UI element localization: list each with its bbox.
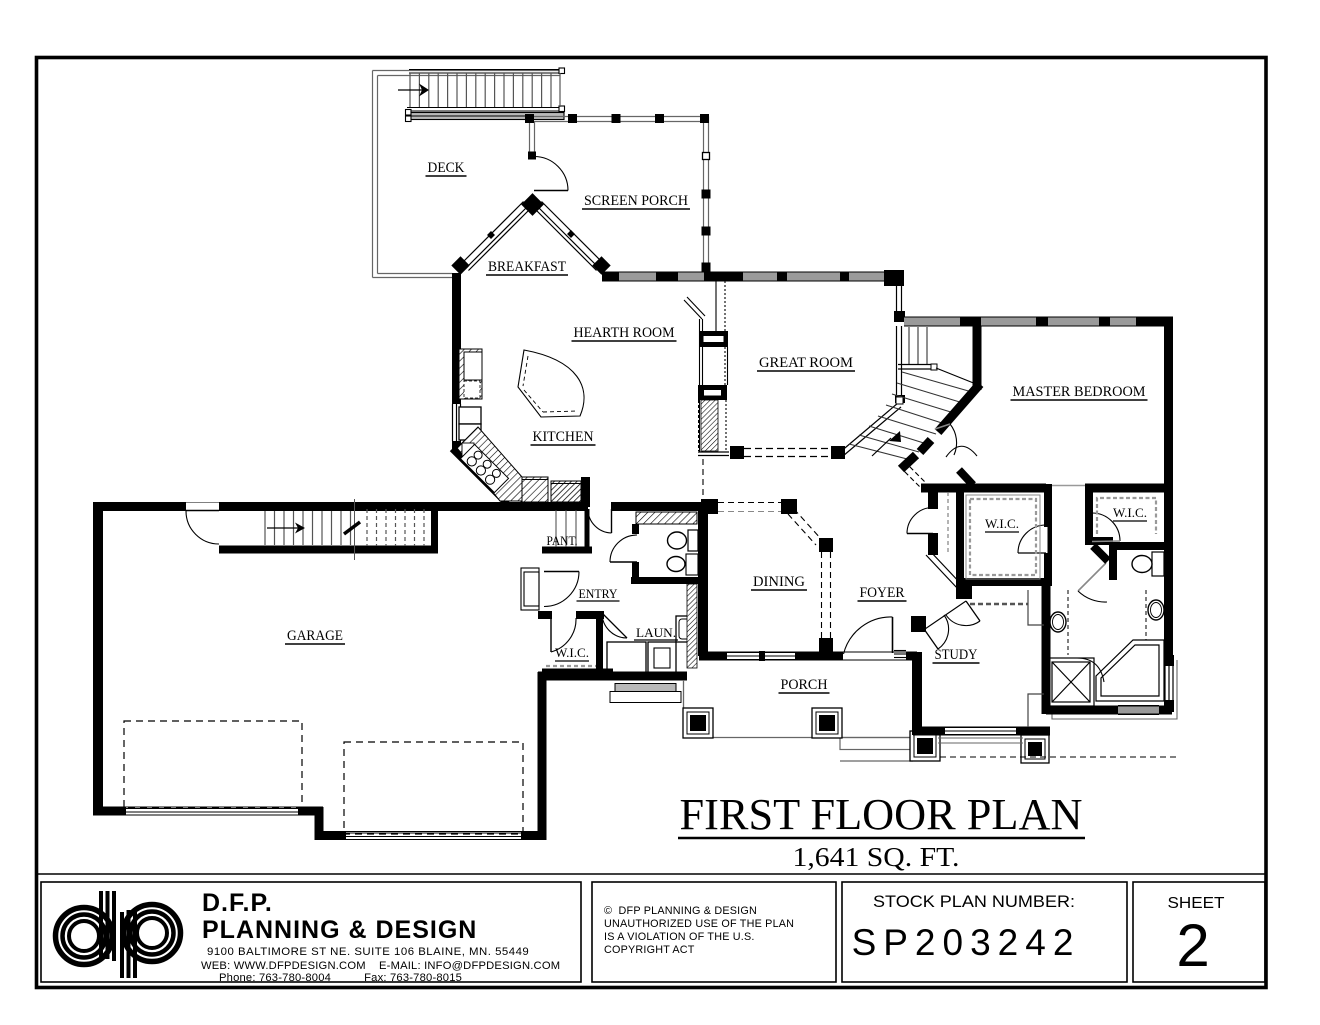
svg-text:ENTRY: ENTRY [579,586,619,601]
svg-text:FOYER: FOYER [860,585,905,601]
svg-text:STUDY: STUDY [935,647,978,663]
svg-text:FIRST FLOOR PLAN: FIRST FLOOR PLAN [680,790,1083,839]
svg-text:MASTER BEDROOM: MASTER BEDROOM [1013,384,1146,400]
svg-text:STOCK PLAN NUMBER:: STOCK PLAN NUMBER: [873,892,1075,911]
svg-text:UNAUTHORIZED USE OF THE PLAN: UNAUTHORIZED USE OF THE PLAN [604,918,794,930]
svg-text:SP203242: SP203242 [852,922,1081,963]
svg-text:W.I.C.: W.I.C. [985,516,1019,531]
svg-text:GREAT ROOM: GREAT ROOM [759,355,853,371]
svg-text:IS A VIOLATION OF THE U.S.: IS A VIOLATION OF THE U.S. [604,931,755,943]
svg-text:BREAKFAST: BREAKFAST [488,259,566,275]
svg-text:COPYRIGHT ACT: COPYRIGHT ACT [604,944,695,956]
svg-text:SCREEN PORCH: SCREEN PORCH [584,193,688,209]
svg-text:GARAGE: GARAGE [287,628,343,644]
svg-text:D.F.P.: D.F.P. [202,889,273,917]
svg-text:DECK: DECK [428,160,465,176]
svg-text:W.I.C.: W.I.C. [1113,505,1147,520]
svg-text:2: 2 [1176,912,1209,979]
svg-text:LAUN.: LAUN. [636,625,676,640]
svg-text:PANT.: PANT. [547,533,578,548]
svg-text:DINING: DINING [753,574,805,590]
svg-text:© DFP PLANNING & DESIGN: © DFP PLANNING & DESIGN [604,905,757,917]
svg-text:9100 BALTIMORE ST NE. SUITE 10: 9100 BALTIMORE ST NE. SUITE 106 BLAINE, … [207,946,529,958]
svg-text:WEB: WWW.DFPDESIGN.COM E-MA: WEB: WWW.DFPDESIGN.COM E-MAIL: INFO@DFPD… [201,960,560,972]
svg-text:HEARTH ROOM: HEARTH ROOM [574,325,675,341]
svg-text:W.I.C.: W.I.C. [555,645,589,660]
svg-text:Phone: 763-780-8004 F: Phone: 763-780-8004 Fax: 763-780-8015 [219,972,462,984]
svg-text:PLANNING & DESIGN: PLANNING & DESIGN [202,916,477,944]
svg-text:1,641 SQ. FT.: 1,641 SQ. FT. [793,842,960,872]
svg-text:SHEET: SHEET [1168,895,1225,912]
svg-text:KITCHEN: KITCHEN [533,429,594,445]
svg-text:PORCH: PORCH [781,677,828,693]
